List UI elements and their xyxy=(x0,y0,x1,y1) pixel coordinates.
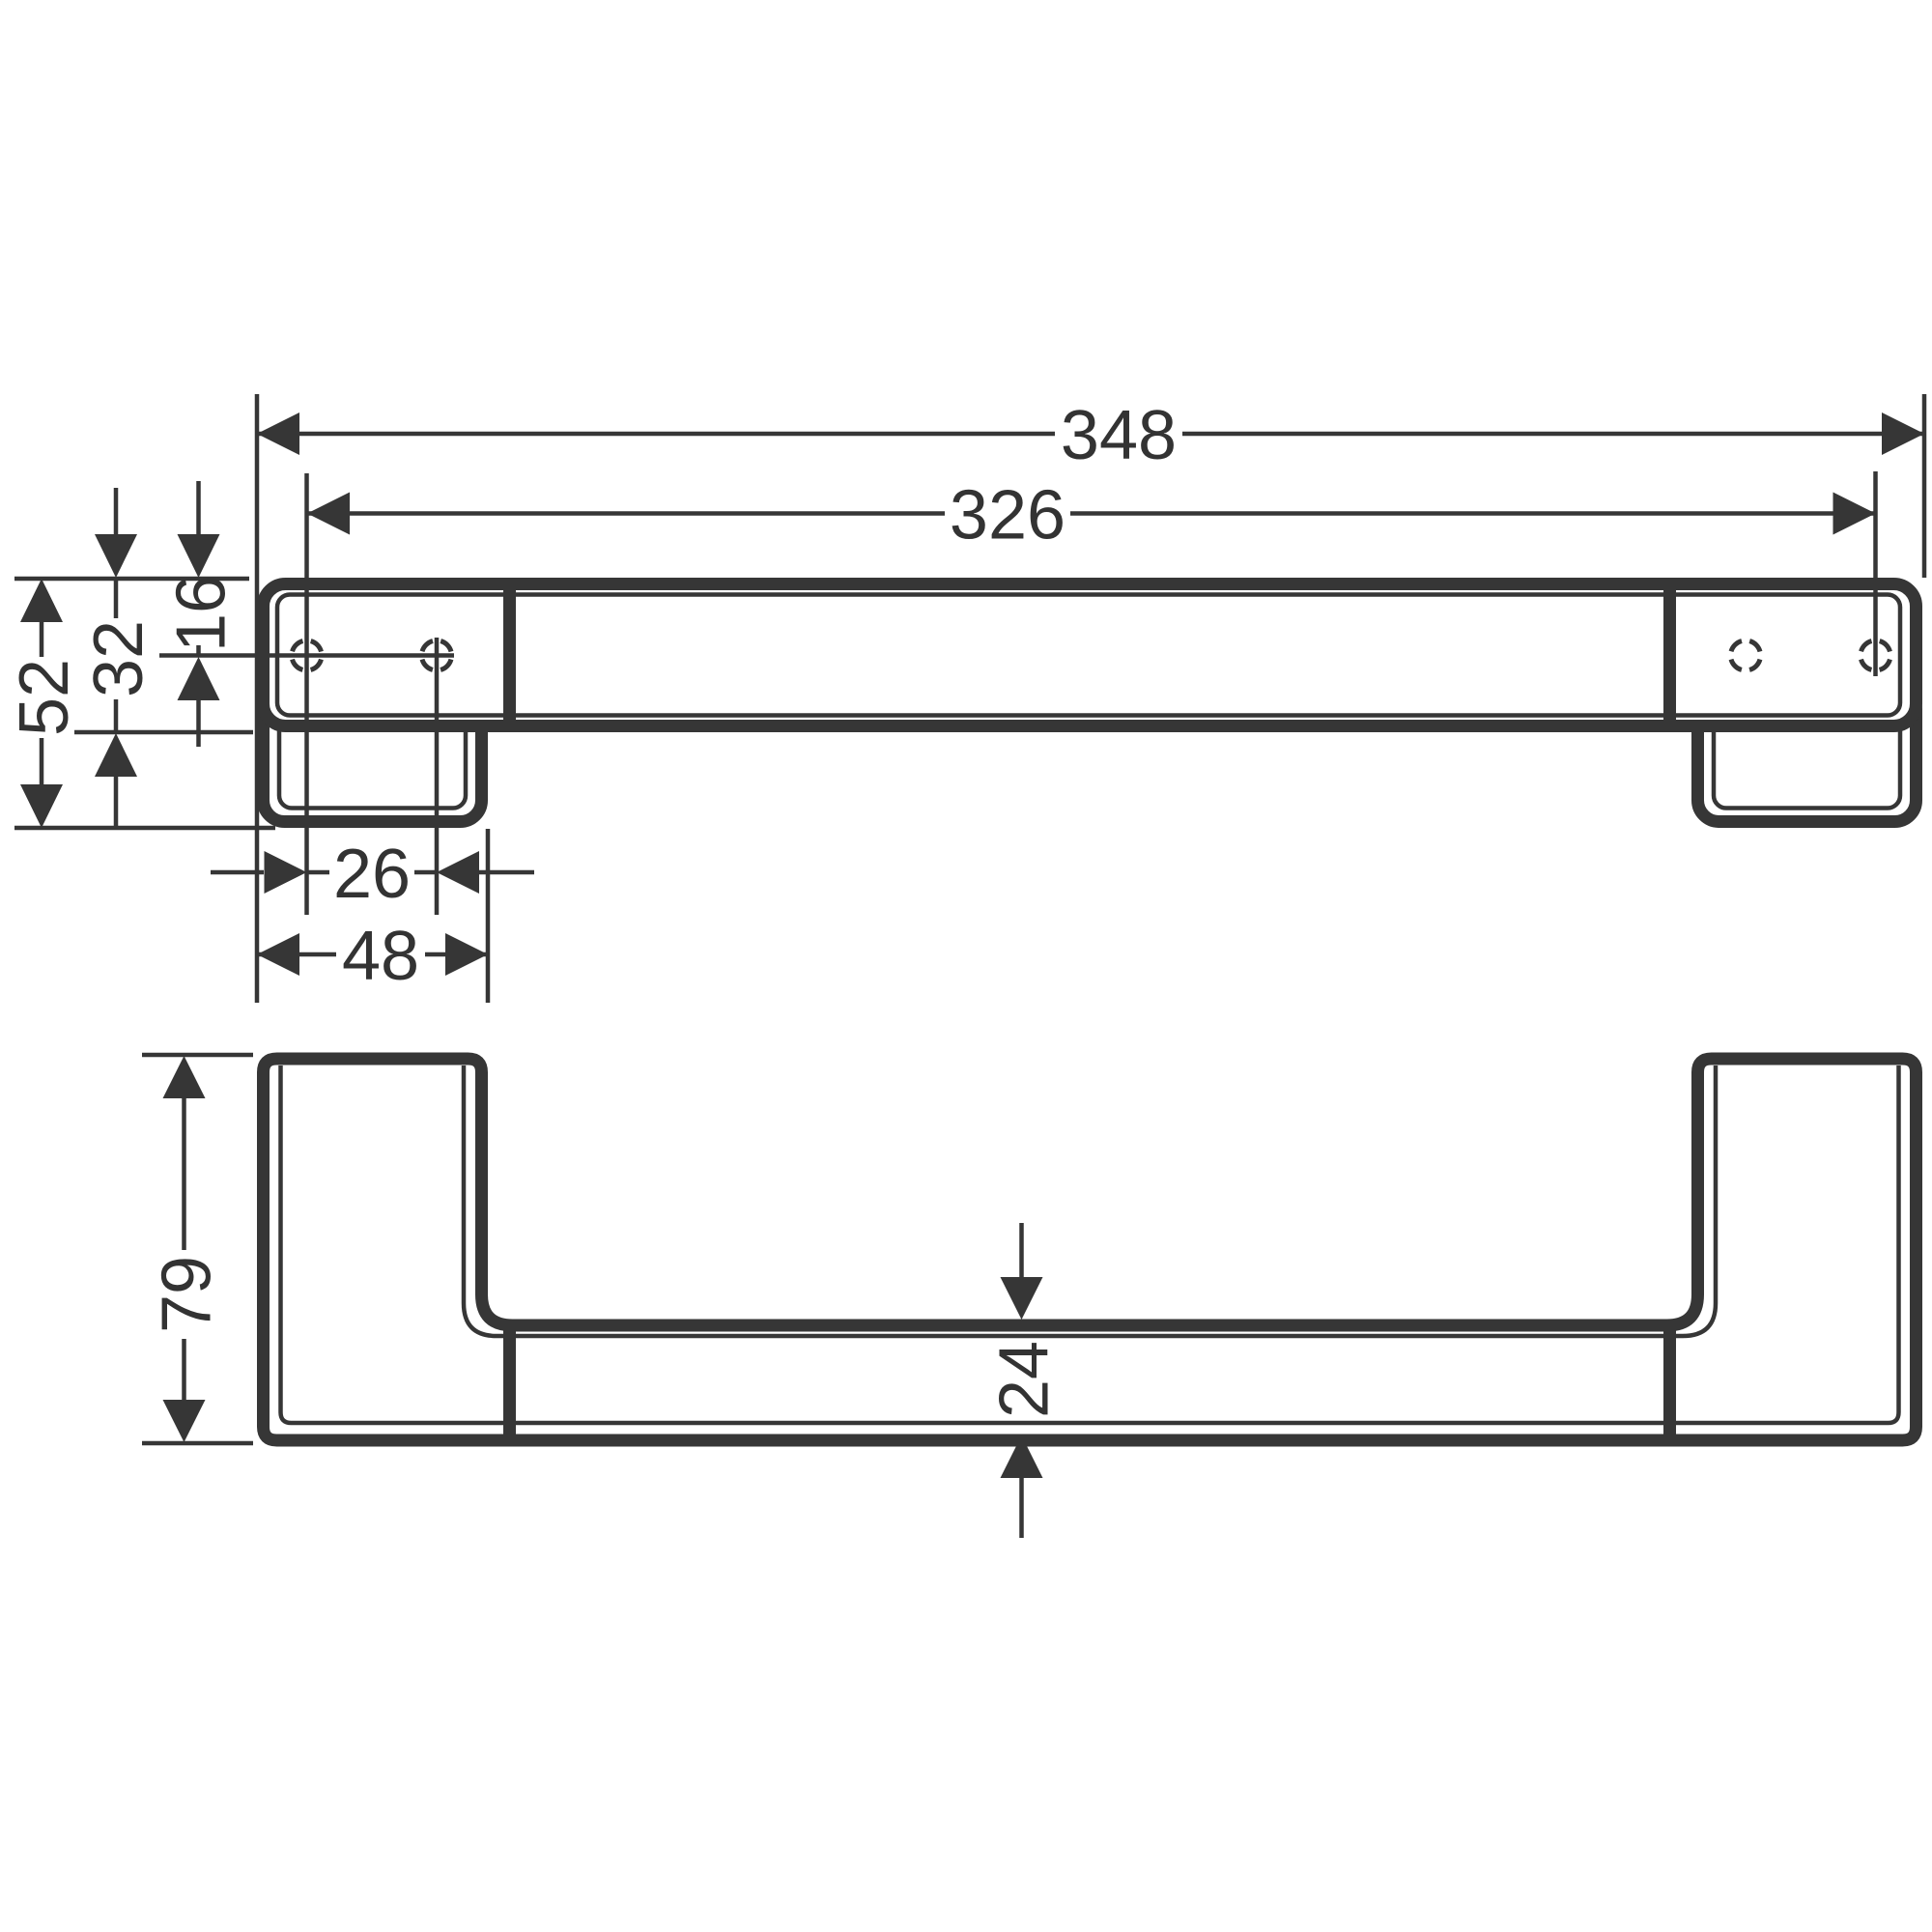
arrowhead-right xyxy=(1833,493,1876,535)
arrowhead-right xyxy=(1882,412,1924,455)
arrowhead-left xyxy=(257,933,299,976)
dim-label-48: 48 xyxy=(342,918,419,995)
dim-label-348: 348 xyxy=(1061,397,1177,474)
arrowhead-up xyxy=(20,579,63,622)
dim-label-16: 16 xyxy=(163,575,241,652)
arrowhead-right xyxy=(445,933,488,976)
front-view: 79 24 xyxy=(142,1055,1917,1538)
arrowhead-down xyxy=(20,784,63,828)
dim-label-52: 52 xyxy=(6,659,83,736)
dim-52: 52 xyxy=(6,579,83,828)
arrowhead-down xyxy=(1001,1277,1043,1320)
dim-326: 326 xyxy=(307,477,1876,554)
arrowhead-up xyxy=(178,657,220,700)
dim-label-24: 24 xyxy=(986,1341,1064,1418)
arrowhead-left xyxy=(257,412,299,455)
arrowhead-left xyxy=(307,493,350,535)
dim-label-79: 79 xyxy=(149,1256,226,1333)
dim-32: 32 xyxy=(80,488,157,828)
arrowhead-right xyxy=(265,851,307,894)
arrowhead-down xyxy=(163,1400,206,1442)
arrowhead-up xyxy=(95,733,137,777)
dim-24: 24 xyxy=(986,1223,1064,1538)
top-view: 348 326 52 32 xyxy=(6,394,1924,1003)
dim-label-326: 326 xyxy=(950,477,1065,554)
arrowhead-left xyxy=(437,851,479,894)
technical-drawing: 348 326 52 32 xyxy=(0,0,1932,1932)
dim-79: 79 xyxy=(142,1055,253,1443)
front-inner-line-rail xyxy=(464,1065,1716,1336)
arrowhead-down xyxy=(178,534,220,578)
dim-16: 16 xyxy=(163,481,241,747)
arrowhead-up xyxy=(163,1056,206,1098)
arrowhead-down xyxy=(95,534,137,578)
dim-label-32: 32 xyxy=(80,620,157,697)
dim-label-26: 26 xyxy=(333,836,411,913)
